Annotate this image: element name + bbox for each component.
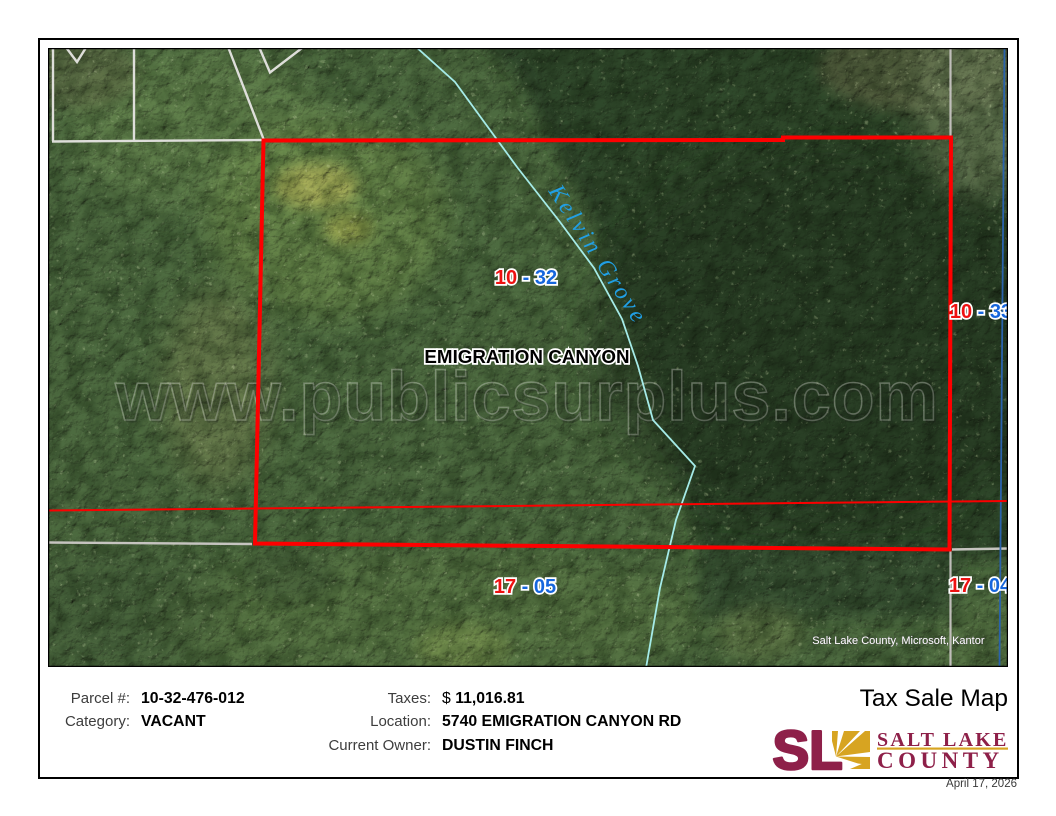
svg-text:EMIGRATION CANYON: EMIGRATION CANYON bbox=[424, 346, 629, 367]
svg-text:SL: SL bbox=[773, 725, 843, 775]
svg-text:COUNTY: COUNTY bbox=[877, 748, 1004, 773]
svg-text:17 - 05: 17 - 05 bbox=[494, 576, 556, 598]
svg-text:17 - 04: 17 - 04 bbox=[949, 575, 1008, 597]
svg-text:Salt Lake County, Microsoft, K: Salt Lake County, Microsoft, Kantor bbox=[812, 635, 985, 647]
svg-text:www.publicsurplus.com: www.publicsurplus.com bbox=[116, 359, 941, 437]
svg-text:10 - 32: 10 - 32 bbox=[495, 267, 557, 289]
svg-text:10 - 33: 10 - 33 bbox=[950, 301, 1008, 323]
